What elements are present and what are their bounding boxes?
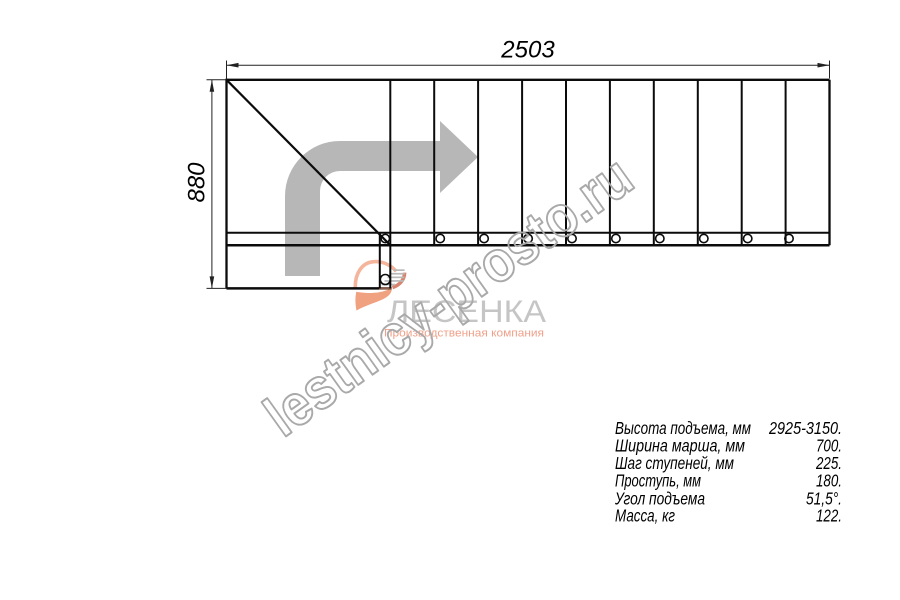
svg-text:880: 880: [184, 162, 211, 203]
svg-text:122.: 122.: [816, 506, 842, 526]
svg-text:Масса, кг: Масса, кг: [615, 506, 675, 526]
svg-text:2503: 2503: [500, 37, 555, 64]
